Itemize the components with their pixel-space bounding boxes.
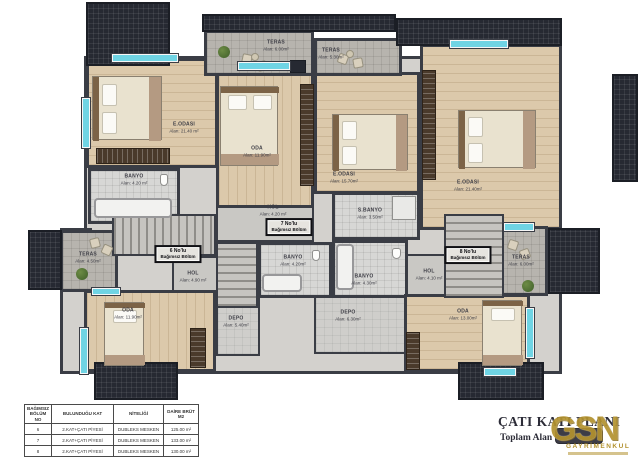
room-label-storage-center: DEPOAlan: 6.30m² xyxy=(335,311,361,322)
cell-floor: 2.KAT+ÇATI PİYESİ xyxy=(52,446,114,457)
double-bed-unit8-master xyxy=(458,110,536,168)
plant-terrace-left xyxy=(76,268,88,280)
cell-area: 133.00 m² xyxy=(164,435,199,446)
cell-unit-no: 6 xyxy=(25,424,52,435)
room-label-bath-unit7: BANYOAlan: 4.20m² xyxy=(280,256,306,267)
cell-unit-no: 8 xyxy=(25,446,52,457)
table-terrace-top2 xyxy=(346,50,354,58)
bathtub-unit7 xyxy=(262,274,302,292)
unit-label-7-line2: Bağımsız Bölüm xyxy=(271,227,306,233)
room-label-master-unit6: E.ODASIAlan: 21.40 m² xyxy=(169,123,198,134)
roof-hatch-left-mid xyxy=(28,230,62,290)
wardrobe-unit8-master xyxy=(422,70,436,180)
room-label-terrace-right: TERASAlan: 6.00m² xyxy=(508,256,534,267)
cell-type: DUBLEKS MESKEN xyxy=(114,435,164,446)
room-label-master-unit7: E.ODASIAlan: 15.70m² xyxy=(330,173,358,184)
wardrobe-unit6-bedroom xyxy=(190,328,206,368)
cell-type: DUBLEKS MESKEN xyxy=(114,446,164,457)
cell-area: 130.00 m² xyxy=(164,446,199,457)
storage-center xyxy=(314,296,406,354)
header-daire-brut-m2: DAİRE BRÜT M2 xyxy=(164,405,199,424)
window-unit6-bedroom-left xyxy=(80,328,88,374)
room-label-bath-unit6: BANYOAlan: 4.20 m² xyxy=(121,175,148,186)
roof-hatch-right-strip xyxy=(612,74,638,182)
room-label-bath-unit8: BANYOAlan: 4.30m² xyxy=(351,275,377,286)
title-block: ÇATI KATI PLANI Toplam Alan = GSN GAYRİM… xyxy=(490,412,640,464)
wardrobe-unit8-bedroom xyxy=(406,332,420,370)
room-label-master-unit8: E.ODASIAlan: 21.40m² xyxy=(454,181,482,192)
single-bed-unit8-bedroom xyxy=(482,300,522,366)
unit-label-8-line2: Bağımsız Bölüm xyxy=(450,255,485,261)
roof-hatch-bottom-left xyxy=(94,362,178,400)
plant-terrace-right xyxy=(522,280,534,292)
cell-floor: 2.KAT+ÇATI PİYESİ xyxy=(52,435,114,446)
toilet-unit8 xyxy=(392,248,401,259)
room-label-storage-left: DEPOAlan: 5.40m² xyxy=(223,317,249,328)
stairs-unit7 xyxy=(216,242,258,308)
room-label-hall-unit8: HOLAlan: 4.10 m² xyxy=(416,270,443,281)
unit-label-6-line2: Bağımsız Bölüm xyxy=(160,254,195,260)
window-terrace-left xyxy=(92,288,120,295)
cell-area: 125.00 m² xyxy=(164,424,199,435)
wardrobe-unit6-master xyxy=(96,148,170,164)
chair-terrace-top2-2 xyxy=(352,57,364,69)
room-label-terrace-left: TERASAlan: 4.50m² xyxy=(75,253,101,264)
window-unit8-bedroom-bottom xyxy=(484,368,516,376)
cell-unit-no: 7 xyxy=(25,435,52,446)
room-label-terrace-top2: TERASAlan: 5.30m² xyxy=(318,49,344,60)
gsn-logo-tagline xyxy=(568,452,628,455)
gsn-logo-subtext: GAYRİMENKUL xyxy=(566,443,630,450)
cell-floor: 2.KAT+ÇATI PİYESİ xyxy=(52,424,114,435)
unit-label-7: 7 No'lu Bağımsız Bölüm xyxy=(265,218,312,236)
shower-unit7 xyxy=(392,196,416,220)
window-unit8-bedroom-right xyxy=(526,308,534,358)
plant-terrace-top xyxy=(218,46,230,58)
unit-label-6: 6 No'lu Bağımsız Bölüm xyxy=(154,245,201,263)
window-unit7-bedroom-top xyxy=(238,62,290,70)
table-row: 6 2.KAT+ÇATI PİYESİ DUBLEKS MESKEN 125.0… xyxy=(25,424,199,435)
toilet-unit7 xyxy=(312,250,320,261)
chimney-block xyxy=(290,60,306,73)
cell-type: DUBLEKS MESKEN xyxy=(114,424,164,435)
table-row: 8 2.KAT+ÇATI PİYESİ DUBLEKS MESKEN 130.0… xyxy=(25,446,199,457)
roof-hatch-right-mid xyxy=(548,228,600,294)
header-bagimsiz-bolum-no: BAĞIMSIZ BÖLÜM NO xyxy=(25,405,52,424)
room-label-bedroom-unit6: ODAAlan: 11.90m² xyxy=(114,309,142,320)
header-niteligi: NİTELİĞİ xyxy=(114,405,164,424)
table-row: 7 2.KAT+ÇATI PİYESİ DUBLEKS MESKEN 133.0… xyxy=(25,435,199,446)
bathtub-unit6 xyxy=(94,198,172,218)
double-bed-unit7-master xyxy=(332,114,408,170)
table-header-row: BAĞIMSIZ BÖLÜM NO BULUNDUĞU KAT NİTELİĞİ… xyxy=(25,405,199,424)
roof-hatch-top-band xyxy=(202,14,396,32)
room-label-hall-unit6: HOLAlan: 4.90 m² xyxy=(180,272,207,283)
table-terrace-top xyxy=(251,53,259,61)
unit-label-8: 8 No'lu Bağımsız Bölüm xyxy=(444,246,491,264)
floor-plan-canvas: 6 No'lu Bağımsız Bölüm 7 No'lu Bağımsız … xyxy=(0,0,640,464)
unit-info-table: BAĞIMSIZ BÖLÜM NO BULUNDUĞU KAT NİTELİĞİ… xyxy=(24,404,199,457)
toilet-unit6 xyxy=(160,174,168,186)
room-label-hall-unit7: HOLAlan: 4.20 m² xyxy=(260,206,287,217)
header-bulundugu-kat: BULUNDUĞU KAT xyxy=(52,405,114,424)
window-unit6-master-top xyxy=(112,54,178,62)
room-label-sbath-unit7: S.BANYOAlan: 3.50m² xyxy=(357,209,383,220)
window-unit6-master-left xyxy=(82,98,90,148)
window-terrace-right-top xyxy=(504,223,534,231)
room-label-bedroom-unit8: ODAAlan: 13.00m² xyxy=(449,310,477,321)
double-bed-unit6-master xyxy=(92,76,162,140)
window-unit8-master-top xyxy=(450,40,508,48)
wardrobe-unit7-bedroom xyxy=(300,84,314,186)
room-label-bedroom-unit7: ODAAlan: 11.90m² xyxy=(243,147,271,158)
room-label-terrace-top1: TERASAlan: 6.00m² xyxy=(263,41,289,52)
